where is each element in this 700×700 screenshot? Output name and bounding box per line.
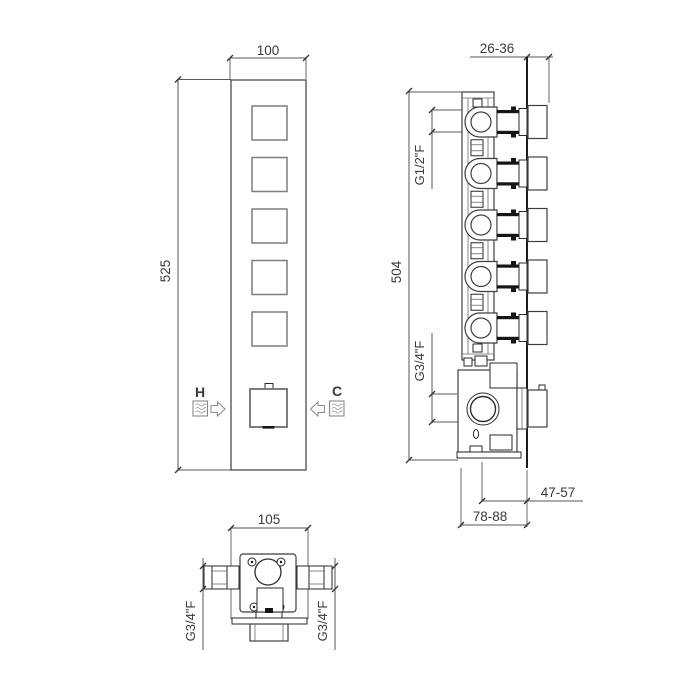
thermostat-body-side (457, 356, 547, 458)
dim-side-height: 504 (389, 88, 462, 463)
side-view: 26-36 504 G1/2"F G (389, 41, 583, 528)
hot-inlet: H (193, 384, 225, 416)
front-thermostat-handle (250, 384, 287, 429)
bottom-width-label: 105 (258, 512, 281, 527)
front-view: 100 525 H (158, 43, 344, 473)
bottom-left-pipe (204, 566, 239, 589)
cold-water-symbol (330, 401, 345, 416)
dim-body-depth: 78-88 (458, 509, 530, 528)
bottom-right-port-label: G3/4"F (315, 601, 330, 642)
bottom-right-pipe (297, 566, 332, 589)
upper-port-label: G1/2"F (412, 145, 427, 186)
bottom-view: 105 (183, 512, 338, 650)
valve-technical-drawing: 100 525 H (0, 0, 700, 700)
wall-depth-label: 26-36 (480, 41, 515, 56)
side-height-label: 504 (389, 260, 404, 283)
bottom-left-port-label: G3/4"F (183, 601, 198, 642)
bottom-left-port-callout: G3/4"F (183, 558, 206, 650)
center-to-wall-label: 47-57 (541, 485, 576, 500)
front-height-label: 525 (158, 260, 173, 283)
dim-front-width: 100 (227, 43, 309, 79)
flow-arrow-left-icon (311, 402, 325, 416)
hot-water-symbol (193, 401, 208, 416)
hot-label: H (195, 384, 205, 400)
body-depth-label: 78-88 (473, 509, 508, 524)
technical-drawing-page: 100 525 H (0, 0, 700, 700)
lower-port-label: G3/4"F (412, 341, 427, 382)
front-width-label: 100 (257, 43, 280, 58)
flow-arrow-right-icon (211, 402, 225, 416)
cold-label: C (332, 383, 342, 399)
cold-inlet: C (311, 383, 345, 416)
thermostat-body-bottom (232, 554, 307, 641)
